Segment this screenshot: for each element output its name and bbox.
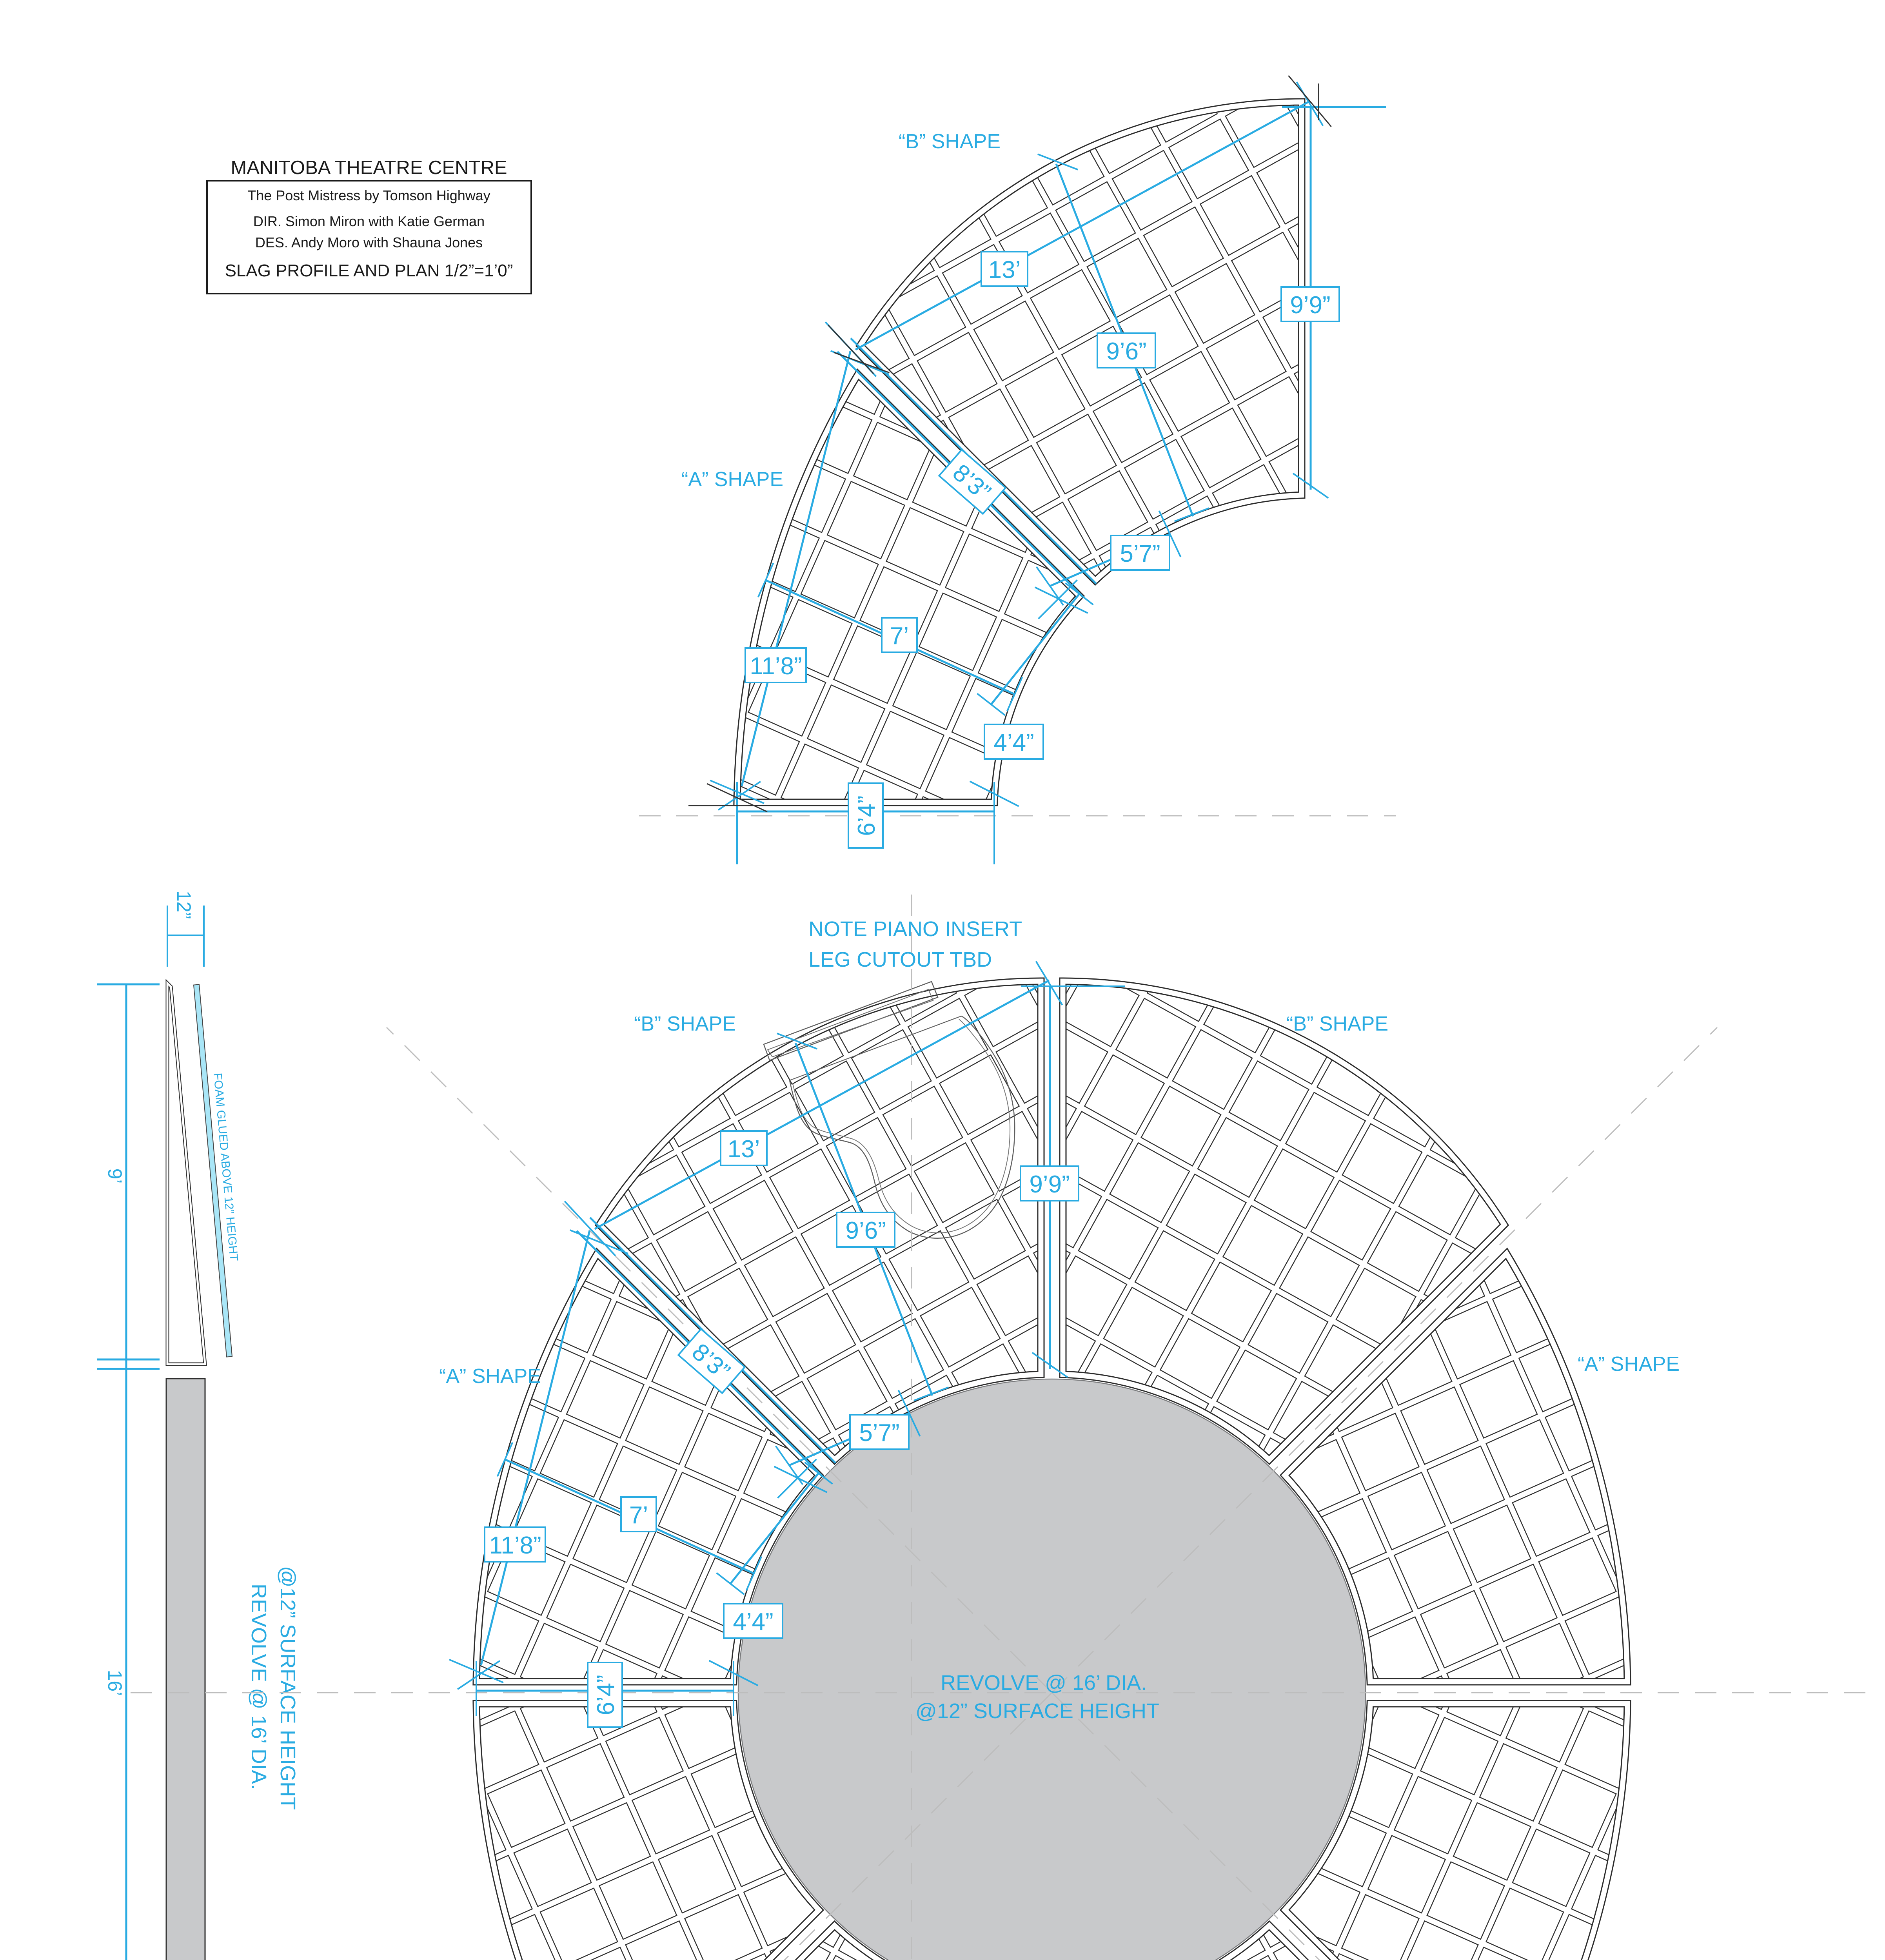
svg-text:REVOLVE @ 16’ DIA.: REVOLVE @ 16’ DIA.	[941, 1671, 1147, 1695]
svg-text:6’4”: 6’4”	[853, 795, 880, 836]
svg-text:5’7”: 5’7”	[859, 1419, 899, 1446]
svg-text:@12” SURFACE HEIGHT: @12” SURFACE HEIGHT	[915, 1699, 1159, 1723]
svg-text:REVOLVE @ 16’ DIA.: REVOLVE @ 16’ DIA.	[247, 1584, 271, 1790]
svg-text:7’: 7’	[890, 622, 909, 650]
svg-text:9’9”: 9’9”	[1290, 292, 1330, 319]
svg-text:9’6”: 9’6”	[845, 1217, 886, 1244]
svg-text:MANITOBA THEATRE CENTRE: MANITOBA THEATRE CENTRE	[231, 157, 507, 178]
svg-text:9’6”: 9’6”	[1106, 338, 1146, 365]
svg-text:SLAG PROFILE AND PLAN 1/2”=1’0: SLAG PROFILE AND PLAN 1/2”=1’0”	[225, 261, 513, 280]
svg-text:16’: 16’	[104, 1670, 126, 1696]
svg-text:The Post Mistress by Tomson Hi: The Post Mistress by Tomson Highway	[247, 187, 490, 203]
svg-text:7’: 7’	[629, 1502, 648, 1529]
svg-text:4’4”: 4’4”	[993, 729, 1034, 756]
svg-text:9’9”: 9’9”	[1029, 1171, 1070, 1198]
svg-text:5’7”: 5’7”	[1120, 540, 1160, 567]
svg-text:11’8”: 11’8”	[489, 1532, 541, 1559]
svg-text:“A” SHAPE: “A” SHAPE	[681, 468, 783, 491]
svg-text:DIR. Simon Miron with Katie Ge: DIR. Simon Miron with Katie German	[253, 213, 485, 229]
svg-text:“B” SHAPE: “B” SHAPE	[634, 1013, 736, 1035]
svg-text:11’8”: 11’8”	[750, 653, 802, 680]
svg-text:NOTE PIANO INSERT: NOTE PIANO INSERT	[808, 917, 1022, 941]
svg-text:12”: 12”	[173, 891, 195, 919]
svg-text:“B” SHAPE: “B” SHAPE	[899, 130, 1001, 153]
svg-text:“A” SHAPE: “A” SHAPE	[439, 1365, 541, 1388]
svg-text:4’4”: 4’4”	[733, 1608, 773, 1635]
svg-text:6’4”: 6’4”	[592, 1675, 619, 1715]
svg-text:“B” SHAPE: “B” SHAPE	[1286, 1013, 1388, 1035]
svg-text:“A” SHAPE: “A” SHAPE	[1578, 1353, 1680, 1376]
svg-text:LEG CUTOUT TBD: LEG CUTOUT TBD	[808, 948, 992, 971]
svg-text:13’: 13’	[988, 256, 1021, 283]
svg-text:@12” SURFACE HEIGHT: @12” SURFACE HEIGHT	[276, 1566, 300, 1810]
svg-text:DES. Andy Moro with Shauna Jon: DES. Andy Moro with Shauna Jones	[255, 234, 483, 250]
svg-text:13’: 13’	[728, 1136, 760, 1163]
svg-text:9’: 9’	[104, 1169, 126, 1184]
